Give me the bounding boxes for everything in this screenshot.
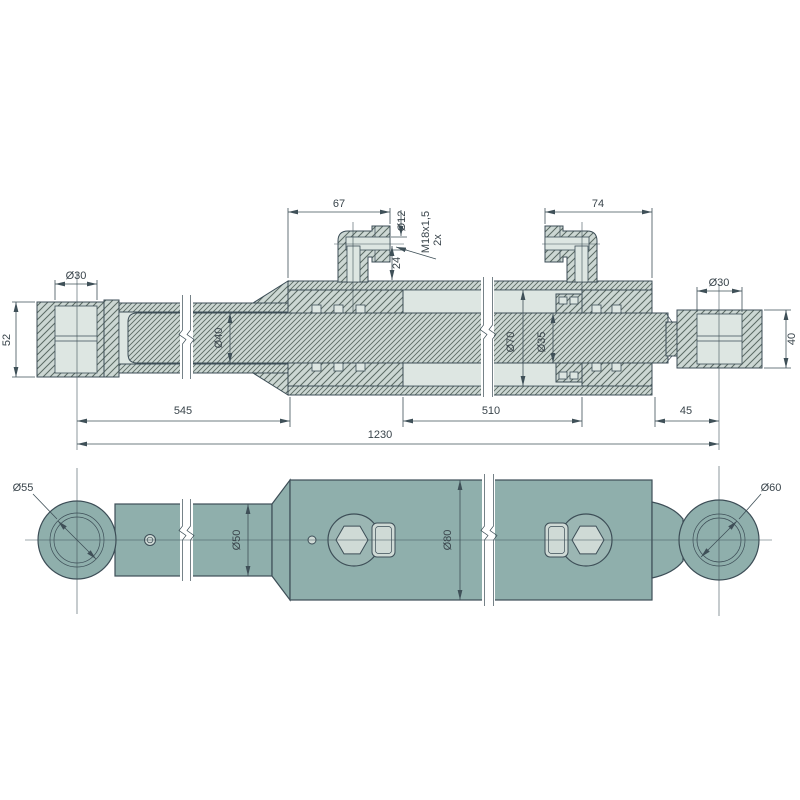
dim-label-74: 74 [592, 198, 604, 210]
break-gap [481, 277, 494, 397]
seal-groove [356, 363, 365, 371]
dim-label-545: 545 [174, 405, 192, 417]
dim-label-52: 52 [1, 334, 13, 346]
head-seal [612, 305, 621, 313]
dim-label-45: 45 [680, 405, 692, 417]
dim-510: 510 [403, 397, 582, 427]
dim-label-dia50: Ø50 [231, 530, 243, 551]
gland-bottom [288, 363, 403, 386]
seal-groove [312, 363, 321, 371]
dim-dia30-right: Ø30 [697, 277, 742, 312]
fitting-body [545, 226, 597, 282]
dim-label-m18: M18x1,5 [420, 211, 432, 253]
fitting-body [338, 226, 390, 282]
section-view: 67 74 Ø12 M18x1,5 2x 24 Ø30 [1, 198, 798, 450]
gland-top [288, 290, 403, 313]
head-seal [592, 363, 601, 371]
body-wall-bottom [288, 386, 652, 395]
dim-1230: 1230 [77, 429, 719, 444]
dim-label-dia40: Ø40 [213, 328, 225, 349]
dim-label-40: 40 [786, 333, 798, 345]
weld-cone-bottom [253, 373, 288, 395]
port-fitting-right [545, 226, 597, 282]
dim-label-dia55: Ø55 [13, 482, 34, 494]
weld-collar [104, 300, 119, 377]
dim-24: 24 [391, 246, 403, 280]
dim-label-dia70: Ø70 [505, 332, 517, 353]
dim-label-dia80: Ø80 [442, 530, 454, 551]
leg-bore [575, 246, 588, 282]
port-fitting-left [338, 226, 390, 282]
left-eye-bore [55, 306, 97, 373]
leg-bore [347, 246, 360, 282]
seal-groove [334, 305, 343, 313]
technical-drawing-page: 67 74 Ø12 M18x1,5 2x 24 Ø30 [0, 0, 800, 800]
dim-dia30-left: Ø30 [55, 270, 97, 300]
head-seal [592, 305, 601, 313]
piston-seal [559, 297, 567, 304]
dim-40: 40 [764, 310, 798, 368]
tube-wall-top [119, 303, 288, 312]
dim-545: 545 [77, 397, 290, 427]
head-seal [612, 363, 621, 371]
right-eye-section [677, 310, 762, 368]
seal-groove [334, 363, 343, 371]
dim-45: 45 [655, 397, 719, 427]
rod-tube-section [119, 303, 697, 373]
piston-seal [559, 372, 567, 379]
dim-label-1230: 1230 [368, 429, 392, 441]
dim-label-2x: 2x [432, 234, 444, 246]
dim-52: 52 [1, 302, 35, 377]
outline-view: Ø55 Ø50 Ø80 Ø60 [13, 466, 782, 616]
dim-label-dia35: Ø35 [536, 332, 548, 353]
dim-label-24: 24 [391, 257, 403, 269]
piston-rod [190, 313, 668, 363]
seal-groove [312, 305, 321, 313]
rod-end [128, 313, 186, 363]
tube-wall-bottom [119, 364, 288, 373]
weld-cone-top [253, 281, 288, 303]
right-eye-bore [697, 314, 742, 364]
dim-label-dia60: Ø60 [761, 482, 782, 494]
dim-label-dia30-left: Ø30 [66, 270, 87, 282]
hydraulic-cylinder-drawing: 67 74 Ø12 M18x1,5 2x 24 Ø30 [0, 0, 800, 800]
dim-label-510: 510 [482, 405, 500, 417]
dim-label-dia30-right: Ø30 [709, 277, 730, 289]
piston-seal [570, 297, 578, 304]
piston-seal [570, 372, 578, 379]
left-eye-section [37, 300, 119, 377]
dim-label-67: 67 [333, 198, 345, 210]
dim-label-dia12: Ø12 [396, 211, 408, 232]
seal-groove [356, 305, 365, 313]
